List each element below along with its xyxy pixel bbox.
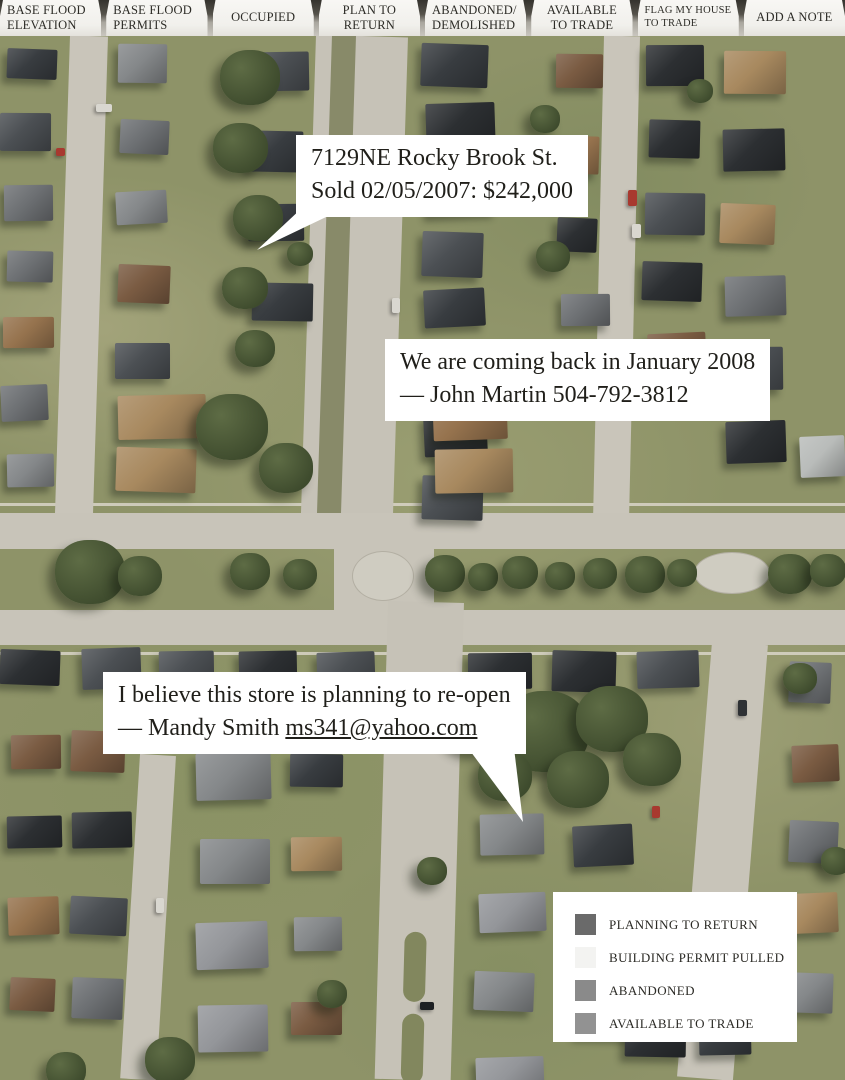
- map-tree: [220, 50, 280, 105]
- map-road-median-island: [401, 1014, 425, 1080]
- note-line: We are coming back in January 2008: [400, 346, 755, 379]
- note-line: — Mandy Smith ms341@yahoo.com: [118, 712, 511, 745]
- map-tree: [213, 123, 268, 174]
- map-tree: [768, 554, 812, 594]
- map-house: [424, 287, 487, 328]
- map-tree: [687, 79, 713, 103]
- tab-available-to-trade[interactable]: AVAILABLE TO TRADE: [531, 0, 632, 36]
- map-tree: [287, 242, 313, 266]
- note-line: — John Martin 504-792-3812: [400, 379, 755, 412]
- map-house: [719, 203, 776, 245]
- legend-label: ABANDONED: [609, 983, 695, 999]
- map-house: [3, 317, 54, 348]
- map-house: [725, 275, 787, 316]
- map-house: [117, 394, 206, 440]
- map-tree: [545, 562, 575, 590]
- map-house: [724, 51, 786, 94]
- legend-swatch-building-permit-pulled: [575, 947, 596, 968]
- map-tree: [547, 751, 609, 808]
- legend-swatch-planning-to-return: [575, 914, 596, 935]
- map-house: [799, 435, 845, 478]
- map-tree: [55, 540, 125, 604]
- map-house: [791, 892, 839, 934]
- email-link[interactable]: ms341@yahoo.com: [285, 715, 477, 741]
- map-house: [420, 43, 489, 88]
- tab-base-flood-permits[interactable]: BASE FLOOD PERMITS: [106, 0, 207, 36]
- map-tree: [530, 105, 560, 133]
- map-tree: [821, 847, 845, 875]
- map-tree: [625, 556, 665, 593]
- map-road-northeast: [593, 36, 640, 516]
- tab-abandoned-demolished[interactable]: ABANDONED/ DEMOLISHED: [425, 0, 526, 36]
- tab-label: BASE FLOOD PERMITS: [113, 3, 192, 32]
- map-house: [117, 264, 171, 304]
- map-house: [7, 48, 58, 80]
- map-median-oval: [352, 551, 414, 601]
- map-tree: [259, 443, 313, 493]
- map-house: [637, 651, 700, 690]
- map-tree: [235, 330, 275, 367]
- map-car: [96, 104, 112, 112]
- map-tree: [667, 559, 697, 587]
- map-tree: [283, 559, 317, 590]
- map-house: [294, 917, 343, 951]
- note-bubble-john-martin[interactable]: We are coming back in January 2008 — Joh…: [385, 339, 770, 421]
- map-house: [475, 1056, 545, 1080]
- map-house: [645, 192, 705, 235]
- map-tree: [196, 394, 268, 460]
- map-house: [648, 119, 700, 158]
- map-tree: [145, 1037, 195, 1080]
- tab-label: ADD A NOTE: [756, 10, 832, 24]
- map-car: [420, 1002, 434, 1010]
- map-tree: [810, 554, 845, 587]
- legend-label: BUILDING PERMIT PULLED: [609, 950, 784, 966]
- map-house: [561, 294, 610, 326]
- map-house: [6, 815, 61, 848]
- map-house: [723, 128, 786, 172]
- note-line: Sold 02/05/2007: $242,000: [311, 175, 573, 208]
- note-bubble-rocky-brook-sale[interactable]: 7129NE Rocky Brook St. Sold 02/05/2007: …: [296, 135, 588, 217]
- map-house: [421, 231, 484, 279]
- map-house: [474, 971, 536, 1012]
- legend-item: BUILDING PERMIT PULLED: [575, 941, 797, 974]
- map-house: [11, 735, 61, 769]
- map-house: [195, 921, 268, 971]
- tab-label: FLAG MY HOUSE TO TRADE: [645, 5, 732, 29]
- map-house: [435, 448, 513, 493]
- legend-item: PLANNING TO RETURN: [575, 908, 797, 941]
- map-house: [9, 977, 56, 1012]
- map-tree: [478, 751, 532, 801]
- tab-plan-to-return[interactable]: PLAN TO RETURN: [319, 0, 420, 36]
- note-author: — Mandy Smith: [118, 715, 285, 741]
- map-tree: [468, 563, 498, 591]
- map-house: [119, 119, 169, 155]
- legend-item: ABANDONED: [575, 974, 797, 1007]
- tab-flag-my-house-to-trade[interactable]: FLAG MY HOUSE TO TRADE: [638, 0, 739, 36]
- tab-label: ABANDONED/ DEMOLISHED: [432, 3, 517, 32]
- map-house: [69, 896, 128, 937]
- legend-label: PLANNING TO RETURN: [609, 917, 758, 933]
- map-house: [572, 823, 634, 867]
- map-car: [738, 700, 747, 716]
- tab-add-a-note[interactable]: ADD A NOTE: [744, 0, 845, 36]
- map-tree: [222, 267, 268, 309]
- map-house: [198, 1004, 269, 1052]
- note-bubble-mandy-smith[interactable]: I believe this store is planning to re-o…: [103, 672, 526, 754]
- map-house: [479, 813, 544, 855]
- tab-occupied[interactable]: OCCUPIED: [213, 0, 314, 36]
- tab-base-flood-elevation[interactable]: BASE FLOOD ELEVATION: [0, 0, 101, 36]
- map-car: [632, 224, 641, 238]
- map-car: [392, 298, 400, 313]
- map-car: [628, 190, 637, 206]
- map-house: [115, 446, 196, 493]
- map-road-median-island: [403, 932, 427, 1003]
- map-house: [641, 261, 703, 302]
- map-house: [6, 250, 53, 282]
- map-tree: [536, 241, 570, 272]
- map-legend: PLANNING TO RETURN BUILDING PERMIT PULLE…: [553, 892, 797, 1042]
- map-house: [791, 744, 839, 783]
- tab-label: OCCUPIED: [231, 10, 295, 24]
- map-tree: [46, 1052, 86, 1080]
- map-house: [0, 112, 51, 150]
- map-tree: [425, 555, 465, 592]
- toolbar: BASE FLOOD ELEVATION BASE FLOOD PERMITS …: [0, 0, 845, 36]
- map-house: [4, 185, 53, 222]
- map-tree: [233, 195, 283, 241]
- legend-label: AVAILABLE TO TRADE: [609, 1016, 754, 1032]
- map-house: [0, 649, 60, 686]
- map-house: [200, 839, 270, 884]
- map-median-oval: [694, 552, 770, 594]
- legend-item: AVAILABLE TO TRADE: [575, 1007, 797, 1040]
- aerial-map[interactable]: 7129NE Rocky Brook St. Sold 02/05/2007: …: [0, 36, 845, 1080]
- map-house: [725, 420, 786, 464]
- map-house: [7, 454, 55, 488]
- map-house: [115, 343, 170, 379]
- map-tree: [230, 553, 270, 590]
- map-tree: [417, 857, 447, 885]
- note-line: I believe this store is planning to re-o…: [118, 679, 511, 712]
- legend-swatch-abandoned: [575, 980, 596, 1001]
- map-house: [71, 977, 124, 1020]
- map-house: [291, 837, 342, 871]
- map-tree: [118, 556, 162, 596]
- map-house: [72, 812, 133, 849]
- tab-label: BASE FLOOD ELEVATION: [7, 3, 86, 32]
- legend-swatch-available-to-trade: [575, 1013, 596, 1034]
- map-tree: [623, 733, 681, 786]
- map-house: [196, 752, 272, 801]
- tab-label: AVAILABLE TO TRADE: [547, 3, 617, 32]
- map-house: [117, 44, 166, 84]
- map-road-main-north: [300, 36, 408, 551]
- map-tree: [317, 980, 347, 1008]
- map-car: [56, 148, 65, 156]
- map-house: [0, 384, 49, 422]
- note-line: 7129NE Rocky Brook St.: [311, 142, 573, 175]
- map-car: [156, 898, 164, 913]
- map-tree: [502, 556, 538, 589]
- map-road-southwest: [120, 754, 176, 1080]
- map-house: [7, 896, 59, 936]
- map-house: [290, 754, 343, 788]
- map-road-median: [316, 36, 356, 550]
- tab-label: PLAN TO RETURN: [343, 3, 396, 32]
- map-house: [479, 892, 547, 933]
- map-car: [652, 806, 660, 818]
- map-tree: [783, 663, 817, 694]
- map-house: [556, 54, 603, 89]
- map-tree: [583, 558, 617, 589]
- map-house: [115, 190, 168, 226]
- app-window: BASE FLOOD ELEVATION BASE FLOOD PERMITS …: [0, 0, 845, 1080]
